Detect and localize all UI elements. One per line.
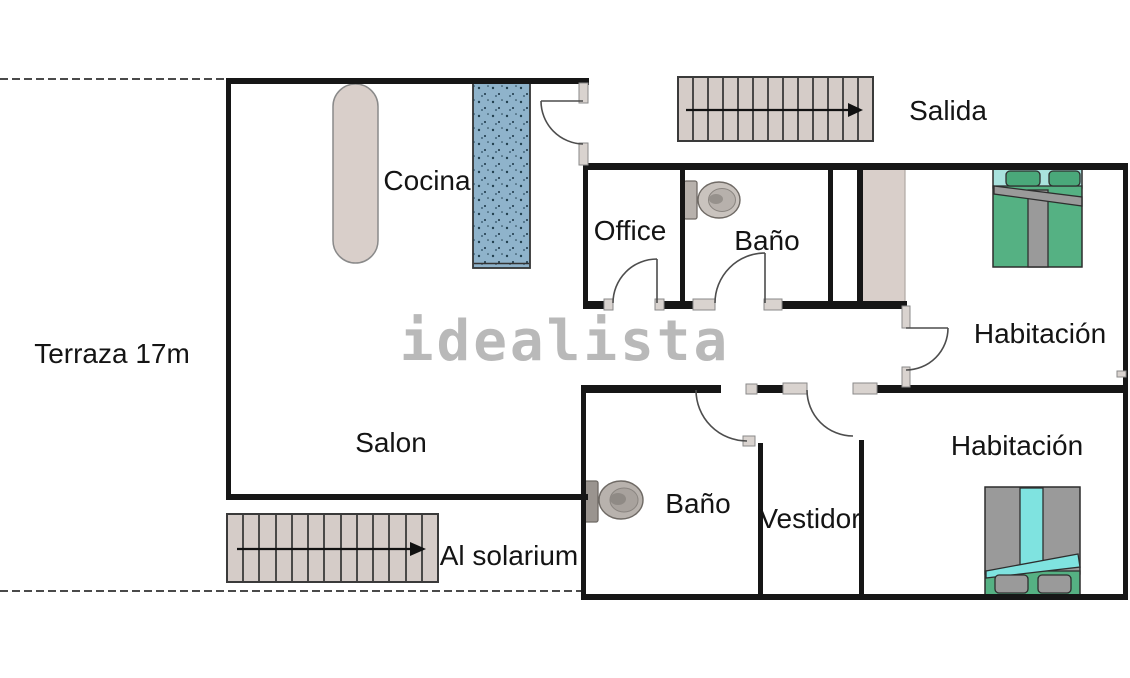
bed-pillow <box>1049 171 1080 186</box>
door-jamb <box>604 299 613 310</box>
bedroom-door-swing <box>906 328 948 370</box>
room-label-terraza: Terraza 17m <box>34 338 190 369</box>
floorplan-image: idealista <box>0 0 1130 678</box>
room-label-vestidor: Vestidor <box>759 503 860 534</box>
toilet-drain <box>610 493 626 505</box>
bed-pillow <box>1006 171 1040 186</box>
bathroom-door-swing <box>715 253 765 303</box>
room-label-habitacion-superior: Habitación <box>974 318 1106 349</box>
wall-segment <box>1123 165 1128 598</box>
wardrobe-column-icon <box>862 169 905 303</box>
door-jamb <box>1117 371 1126 377</box>
wall-segment <box>226 78 588 84</box>
room-label-bano-superior: Baño <box>734 225 799 256</box>
office-door-swing <box>613 259 657 303</box>
kitchen-counter-icon <box>333 84 378 263</box>
entry-door-swing <box>541 101 583 144</box>
toilet-icon <box>684 181 740 219</box>
kitchen-worktop-speckles <box>473 82 530 268</box>
room-label-habitacion-inferior: Habitación <box>951 430 1083 461</box>
double-bed-icon <box>985 487 1080 595</box>
double-bed-icon <box>993 168 1082 267</box>
idealista-watermark: idealista <box>400 309 730 374</box>
door-jamb <box>579 143 588 165</box>
wall-segment <box>663 301 695 309</box>
wall-segment <box>226 494 588 500</box>
wall-segment <box>581 385 586 598</box>
room-label-office: Office <box>594 215 667 246</box>
room-label-bano-inferior: Baño <box>665 488 730 519</box>
wall-segment <box>583 168 588 309</box>
room-label-salon: Salon <box>355 427 427 458</box>
bed-pillow <box>995 575 1028 593</box>
wall-segment <box>680 167 685 307</box>
room-label-al-solarium: Al solarium <box>440 540 578 571</box>
wall-segment <box>857 167 863 307</box>
door-jamb <box>579 83 588 103</box>
wardrobe-body <box>862 169 905 303</box>
door-jamb <box>902 306 910 328</box>
bed-runner <box>1020 488 1043 570</box>
door-jamb <box>693 299 715 310</box>
door-jamb <box>746 384 757 394</box>
toilet-tank <box>584 481 598 522</box>
room-label-salida: Salida <box>909 95 987 126</box>
wall-segment <box>226 78 231 500</box>
room-label-cocina: Cocina <box>383 165 471 196</box>
bed-pillow <box>1038 575 1071 593</box>
floorplan-svg: idealista <box>0 0 1130 678</box>
dressing-room-door-swing <box>807 390 853 436</box>
staircase-salida-icon <box>678 77 873 141</box>
door-jamb <box>764 299 782 310</box>
door-jamb <box>853 383 877 394</box>
wall-segment <box>781 301 907 309</box>
wall-segment <box>583 163 1128 170</box>
wall-segment <box>828 167 833 307</box>
door-jamb <box>783 383 807 394</box>
lower-bathroom-door-swing <box>696 390 747 441</box>
staircase-solarium-icon <box>227 514 438 582</box>
toilet-icon <box>584 481 643 522</box>
toilet-drain <box>709 194 723 204</box>
wall-segment <box>581 594 1128 600</box>
wall-segment <box>755 385 783 393</box>
wall-segment <box>877 385 1128 393</box>
wall-segment <box>583 385 721 393</box>
kitchen-worktop-icon <box>473 82 530 268</box>
toilet-tank <box>684 181 697 219</box>
